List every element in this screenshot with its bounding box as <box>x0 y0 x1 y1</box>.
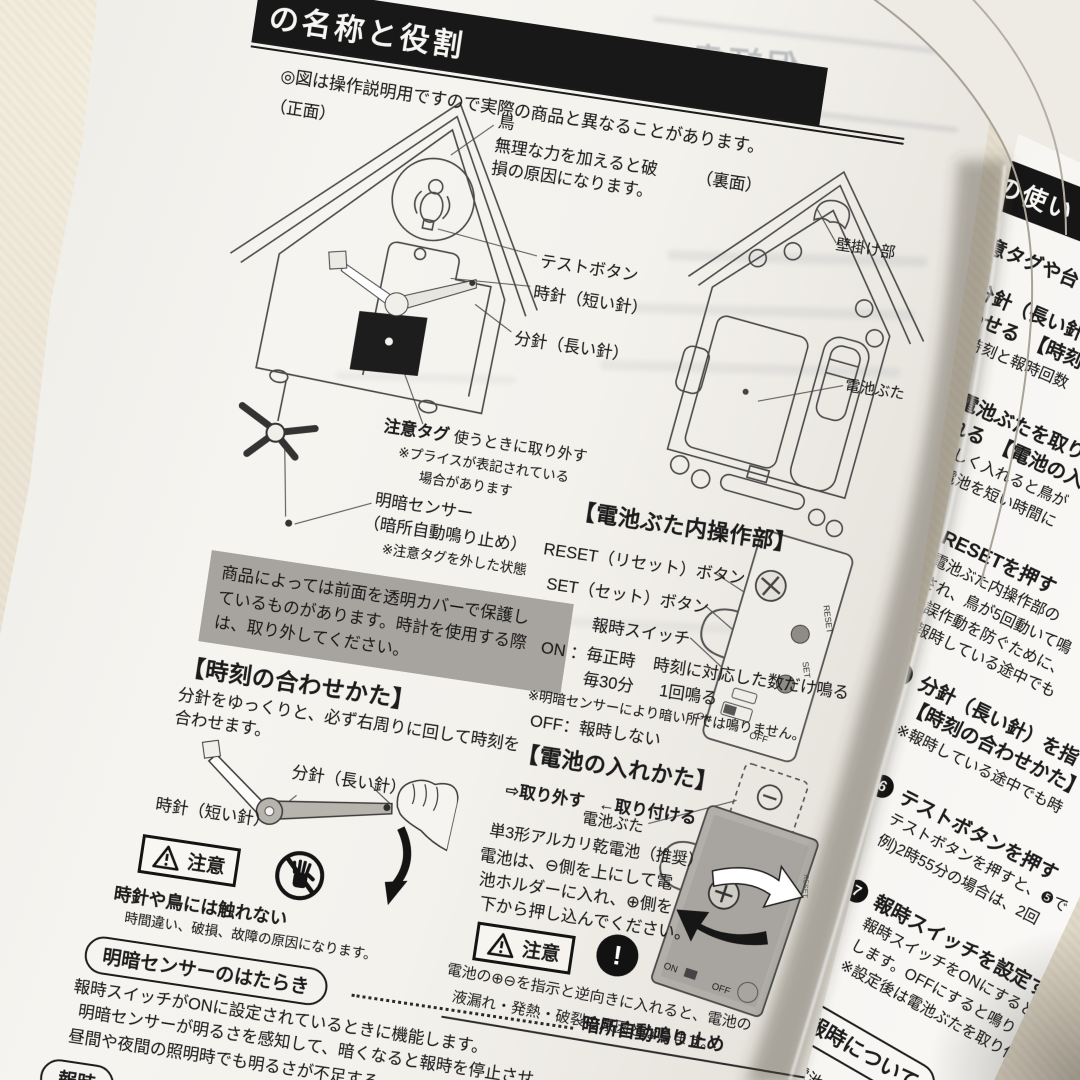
corner-vignette <box>930 930 1080 1080</box>
manual-photo: 保証書 <box>0 0 1080 1080</box>
